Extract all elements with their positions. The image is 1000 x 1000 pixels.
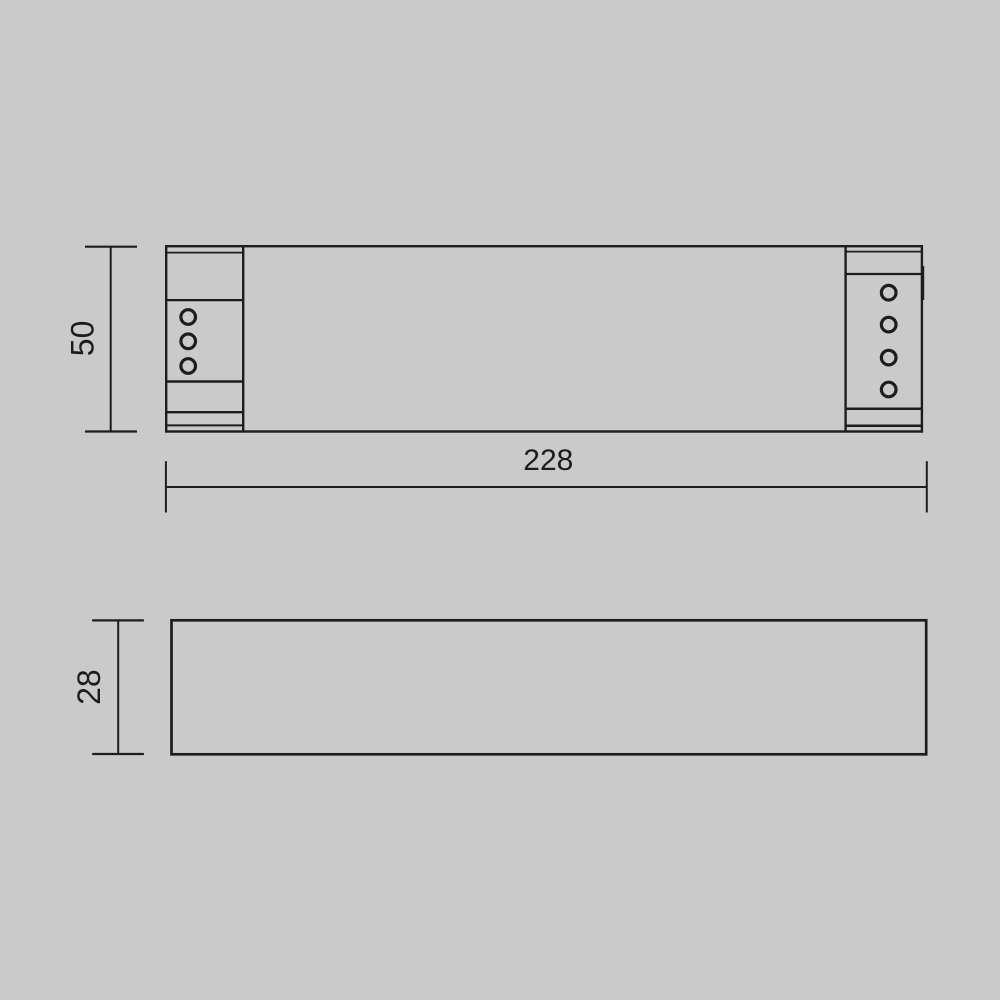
svg-text:28: 28 bbox=[71, 669, 107, 705]
svg-text:50: 50 bbox=[65, 321, 101, 357]
svg-text:228: 228 bbox=[523, 444, 573, 477]
